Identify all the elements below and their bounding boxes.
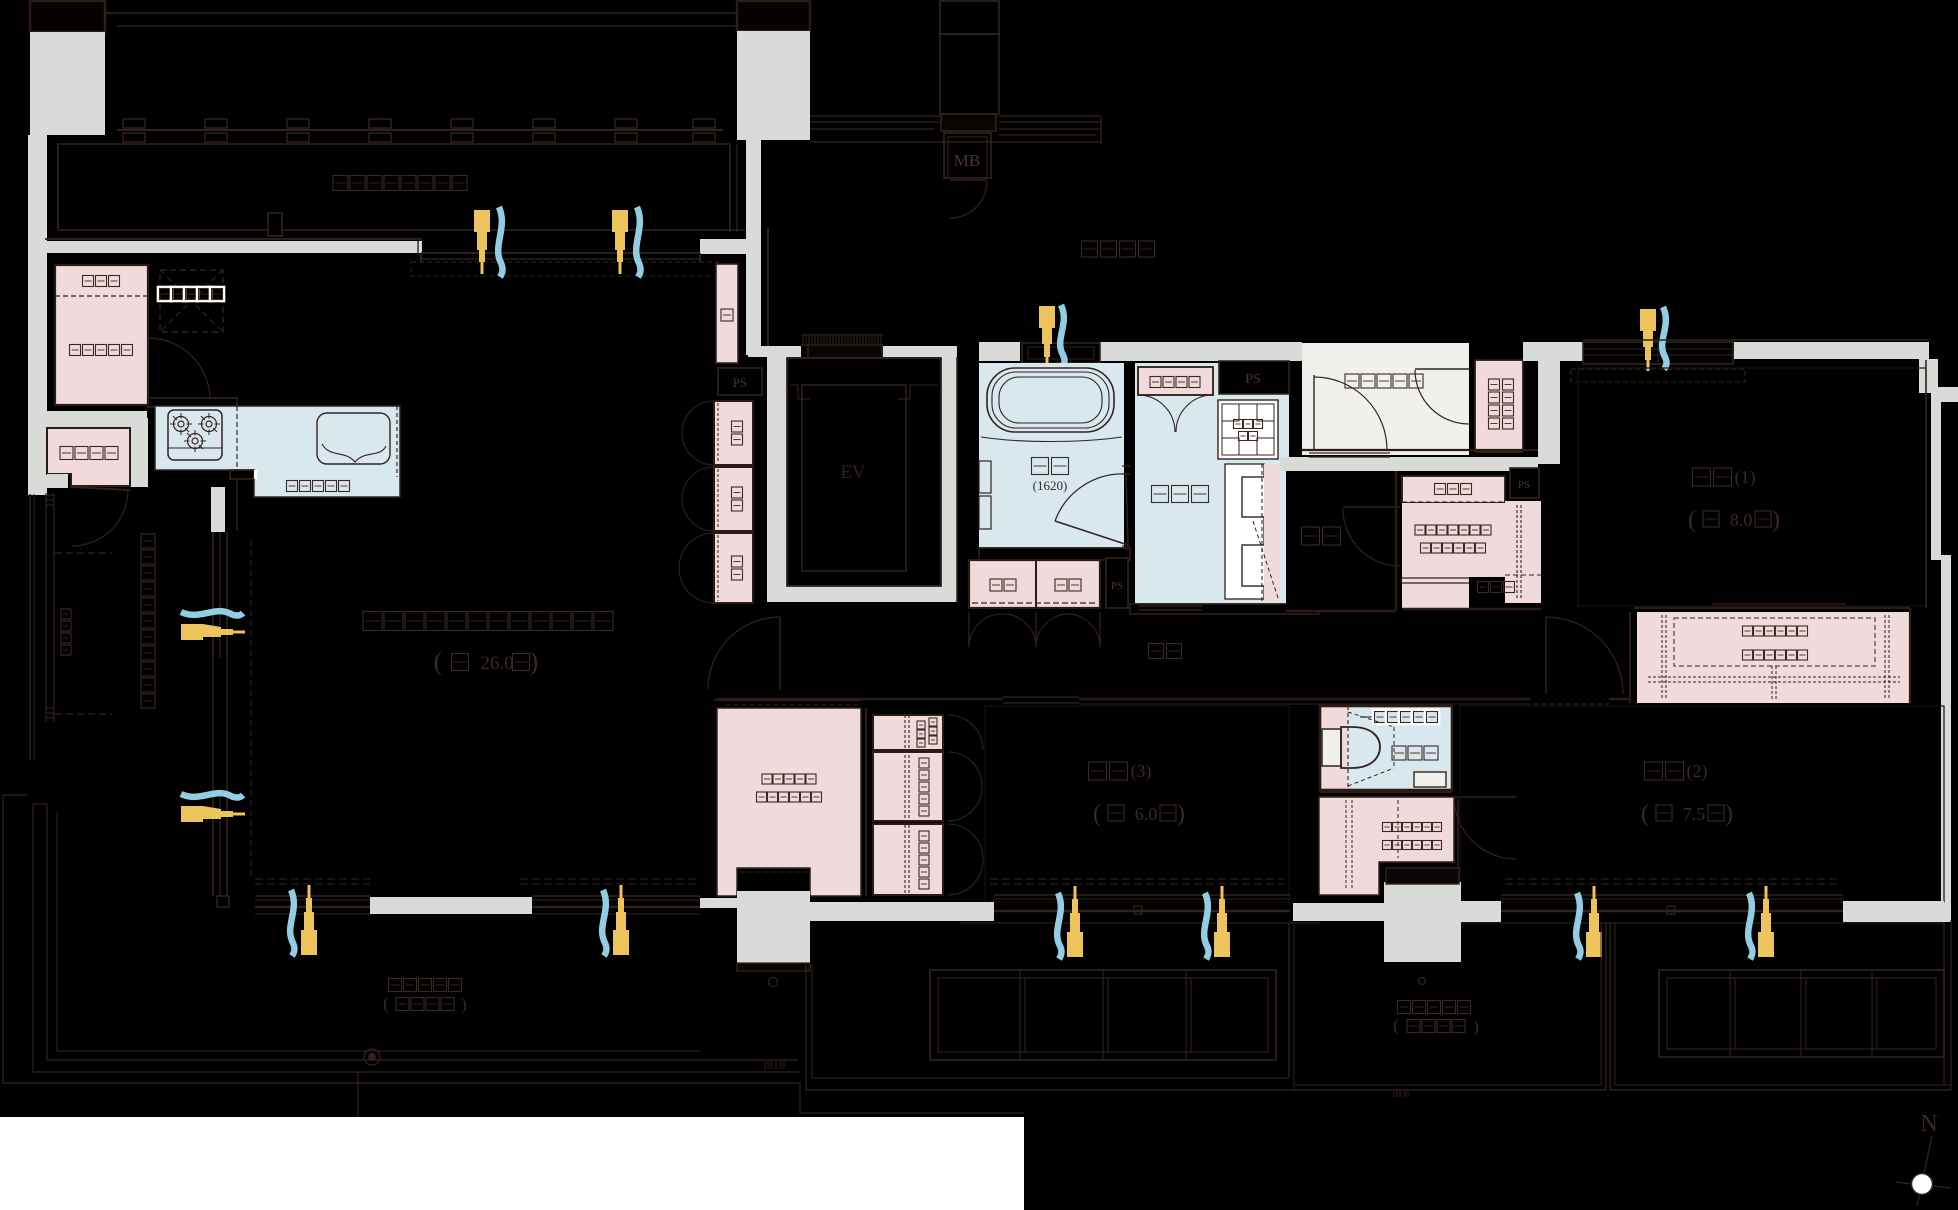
svg-text:PS: PS	[733, 375, 747, 390]
svg-text:(1): (1)	[1735, 467, 1756, 488]
svg-text:(1620): (1620)	[1033, 478, 1068, 493]
svg-text:(: (	[1093, 801, 1101, 827]
svg-text:8.0: 8.0	[1730, 510, 1753, 530]
svg-text:6.0: 6.0	[1135, 804, 1158, 824]
svg-text:(: (	[1688, 507, 1696, 533]
svg-text:): )	[1725, 801, 1733, 827]
svg-text:PS: PS	[1245, 372, 1261, 387]
svg-text:): )	[461, 995, 467, 1014]
svg-text:EV: EV	[840, 462, 866, 483]
svg-text:MB: MB	[954, 151, 980, 170]
svg-text:26.0: 26.0	[480, 653, 513, 674]
svg-text:(: (	[1641, 801, 1649, 827]
svg-text:(: (	[1393, 1016, 1399, 1035]
svg-text:): )	[1177, 801, 1185, 827]
svg-text:(: (	[434, 647, 443, 676]
svg-text:N: N	[1920, 1111, 1937, 1137]
svg-text:(2): (2)	[1687, 761, 1708, 782]
svg-text:PS: PS	[1518, 479, 1530, 491]
svg-text:(: (	[383, 994, 389, 1013]
svg-text:): )	[1473, 1017, 1479, 1036]
svg-text:): )	[1772, 507, 1780, 533]
svg-text:7.5: 7.5	[1683, 804, 1706, 824]
svg-text:(3): (3)	[1131, 761, 1152, 782]
svg-text:): )	[530, 647, 539, 676]
svg-text:PS: PS	[1111, 580, 1123, 592]
